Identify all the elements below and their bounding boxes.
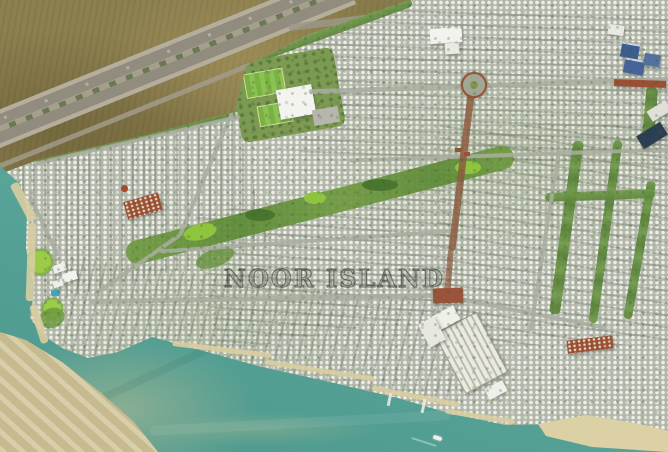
corridor-park-lawn bbox=[304, 192, 326, 204]
swimming-pool bbox=[51, 290, 60, 296]
red-strip-northeast bbox=[614, 79, 666, 88]
community-building bbox=[276, 84, 317, 120]
marina-building bbox=[62, 270, 78, 283]
blue-office-building bbox=[620, 42, 640, 60]
white-slab-east bbox=[646, 100, 668, 122]
red-junction-dot bbox=[121, 185, 128, 192]
road-corridor-south bbox=[160, 229, 460, 254]
red-roof-cluster-west bbox=[123, 192, 163, 219]
linear-park-east bbox=[623, 180, 656, 319]
terracotta-boulevard-south bbox=[444, 249, 454, 296]
linear-park-east bbox=[588, 139, 623, 323]
district-rows-east bbox=[440, 125, 668, 345]
marina-building bbox=[52, 262, 67, 274]
marina-building bbox=[52, 279, 64, 289]
white-building-north bbox=[430, 27, 463, 44]
district-rows-center bbox=[195, 171, 466, 352]
sports-field bbox=[257, 101, 294, 128]
blue-office-building bbox=[643, 53, 661, 68]
white-slab-northeast bbox=[607, 24, 624, 36]
blue-office-building bbox=[623, 57, 645, 75]
corridor-park-lawn bbox=[182, 220, 219, 244]
school-annex bbox=[484, 380, 507, 400]
parking-apron bbox=[312, 106, 340, 126]
linear-park-east bbox=[549, 140, 584, 315]
red-roof-row-southeast bbox=[566, 335, 613, 354]
coastal-boulevard bbox=[90, 293, 446, 304]
corridor-tree-clump bbox=[362, 179, 398, 191]
linear-park-east bbox=[642, 87, 659, 143]
corridor-park-lawn bbox=[455, 161, 481, 174]
terracotta-boulevard bbox=[448, 93, 474, 251]
waterfront-park-circle bbox=[42, 298, 63, 319]
corridor-tree-clump bbox=[245, 209, 275, 221]
district-rows-north bbox=[300, 0, 668, 165]
roundabout bbox=[461, 72, 487, 98]
masterplan-aerial-view: NOOR ISLAND bbox=[0, 0, 668, 452]
red-median-mark bbox=[464, 152, 470, 156]
linear-park-east-horizontal bbox=[545, 189, 655, 202]
campus-green bbox=[229, 46, 346, 143]
road-west-district-edge bbox=[178, 112, 234, 237]
sports-field bbox=[243, 68, 287, 100]
school-hall bbox=[432, 305, 461, 330]
white-building-north-wing bbox=[445, 43, 460, 55]
road-to-marina bbox=[93, 234, 180, 297]
road-north-arterial bbox=[309, 77, 668, 95]
school-wing bbox=[418, 316, 446, 347]
road-mid-arterial bbox=[349, 147, 668, 162]
coastal-boulevard-east bbox=[443, 294, 606, 329]
central-green-corridor bbox=[123, 143, 516, 266]
watermark-text: NOOR ISLAND bbox=[224, 264, 445, 293]
school-striped-roof bbox=[434, 312, 508, 395]
red-median-mark bbox=[455, 148, 461, 152]
road-east-vertical bbox=[529, 148, 562, 331]
roundabout-island bbox=[470, 81, 478, 89]
navy-building-east bbox=[636, 122, 668, 150]
